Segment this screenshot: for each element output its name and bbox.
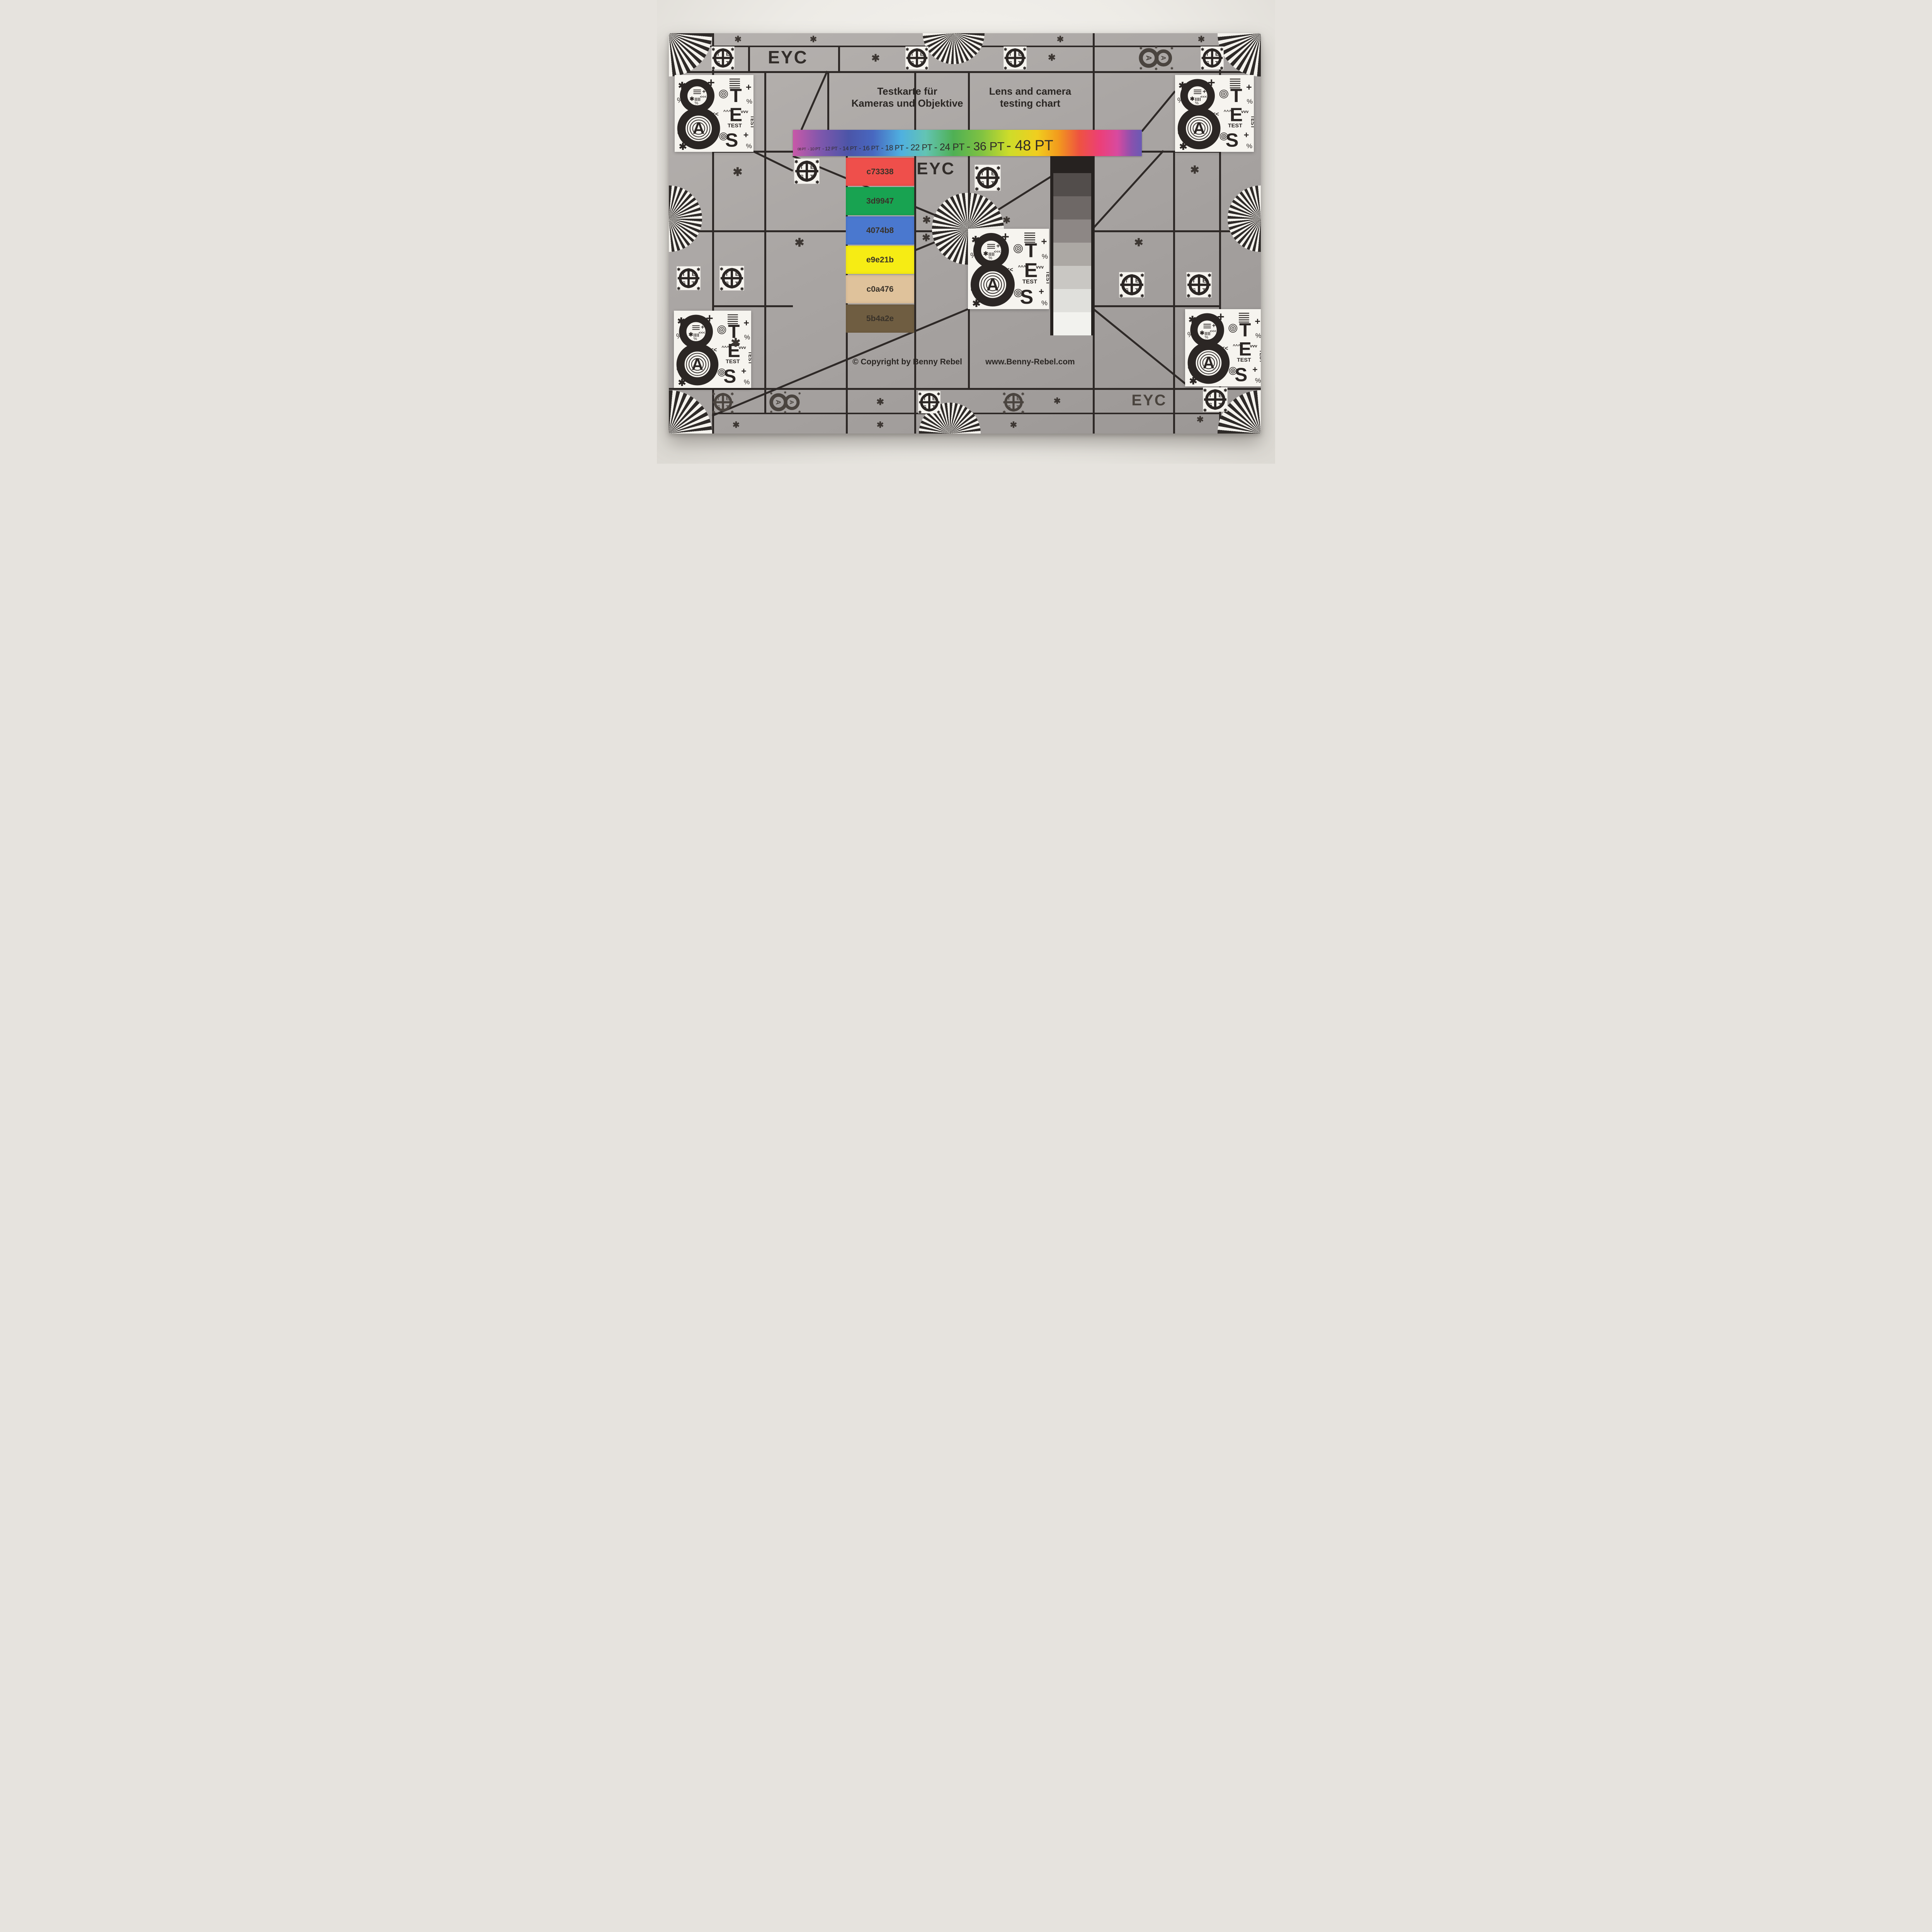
pt-size-label: - 14 PT xyxy=(839,145,857,152)
asterisk-mark: ✱ xyxy=(922,215,931,225)
grayscale-step xyxy=(1053,173,1091,196)
asterisk-mark: ✱ xyxy=(810,35,817,44)
grayscale-step xyxy=(1053,289,1091,312)
grid-line-v xyxy=(764,71,766,413)
test-circle-logo xyxy=(1186,271,1212,299)
grayscale-step xyxy=(1053,266,1091,289)
asterisk-mark: ✱ xyxy=(735,35,742,44)
asterisk-mark: ✱ xyxy=(1048,53,1056,63)
siemens-star-edge-top xyxy=(923,33,985,64)
siemens-star-edge-left xyxy=(669,185,702,252)
eight-test-patch-bottom-left xyxy=(674,311,751,388)
asterisk-mark: ✱ xyxy=(1054,397,1061,405)
eight-test-patch-bottom-right xyxy=(1185,309,1261,386)
siemens-star-edge-right xyxy=(1228,185,1261,252)
siemens-star-corner-bottom-left xyxy=(669,390,712,434)
color-swatch-column: c733383d99474074b8e9e21bc0a4765b4a2e xyxy=(846,158,914,333)
copyright-text: © Copyright by Benny Rebel xyxy=(852,357,962,367)
grayscale-step xyxy=(1053,196,1091,219)
title-german-line1: Testkarte für xyxy=(852,85,963,97)
pt-size-label: - 36 PT xyxy=(966,139,1004,153)
pt-size-label: - 18 PT xyxy=(881,144,904,153)
color-swatch: c0a476 xyxy=(846,275,914,303)
asterisk-mark: ✱ xyxy=(731,337,740,349)
test-circle-logo xyxy=(794,158,820,185)
eight-test-patch-center xyxy=(968,229,1049,309)
asterisk-mark: ✱ xyxy=(1198,35,1205,44)
grid-line-v xyxy=(914,71,916,434)
siemens-star-corner-top-left xyxy=(669,33,712,77)
asterisk-mark: ✱ xyxy=(922,233,930,243)
pt-size-labels: 08 PT- 10 PT- 12 PT- 14 PT- 16 PT- 18 PT… xyxy=(798,138,1053,154)
asterisk-mark: ✱ xyxy=(733,421,740,429)
asterisk-mark: ✱ xyxy=(876,398,884,407)
asterisk-mark: ✱ xyxy=(1010,421,1017,429)
test-circle-logo xyxy=(719,265,745,291)
eight-test-patch-top-right xyxy=(1175,75,1254,152)
test-circle-logo xyxy=(1202,387,1228,412)
test-circle-logo-dark xyxy=(711,391,735,414)
color-swatch: c73338 xyxy=(846,158,914,186)
grid-line-h xyxy=(712,305,793,307)
grid-line-v xyxy=(968,309,970,388)
grid-line-v xyxy=(968,71,970,130)
title-german-line2: Kameras und Objektive xyxy=(852,97,963,109)
asterisk-mark: ✱ xyxy=(1134,237,1143,248)
test-circle-logo xyxy=(1119,271,1145,299)
pt-size-label: - 24 PT xyxy=(934,142,964,153)
grid-line-h xyxy=(669,71,1261,73)
camera-test-chart: 08 PT- 10 PT- 12 PT- 14 PT- 16 PT- 18 PT… xyxy=(669,33,1261,434)
pt-size-label: - 22 PT xyxy=(906,143,932,153)
title-english-line1: Lens and camera xyxy=(989,85,1071,97)
color-swatch: 5b4a2e xyxy=(846,304,914,333)
pt-size-label: - 12 PT xyxy=(822,146,837,151)
sideways-eight-a-icon xyxy=(1138,45,1175,71)
grayscale-step xyxy=(1053,312,1091,335)
pt-size-label: 08 PT xyxy=(798,147,806,151)
test-circle-logo xyxy=(1200,46,1224,70)
rainbow-font-scale-bar: 08 PT- 10 PT- 12 PT- 14 PT- 16 PT- 18 PT… xyxy=(793,130,1142,156)
pt-size-label: - 10 PT xyxy=(808,147,821,151)
asterisk-mark: ✱ xyxy=(1197,415,1204,424)
grid-line-h xyxy=(1093,305,1219,307)
test-circle-logo xyxy=(711,46,735,70)
grayscale-step xyxy=(1053,219,1091,243)
title-german: Testkarte für Kameras und Objektive xyxy=(852,85,963,109)
test-circle-logo xyxy=(918,391,941,414)
website-text: www.Benny-Rebel.com xyxy=(985,357,1075,367)
color-swatch: 3d9947 xyxy=(846,187,914,215)
title-english: Lens and camera testing chart xyxy=(989,85,1071,109)
test-circle-logo xyxy=(974,164,1001,192)
asterisk-mark: ✱ xyxy=(877,421,884,429)
pt-size-label: - 16 PT xyxy=(859,145,879,152)
asterisk-mark: ✱ xyxy=(1057,35,1064,44)
grayscale-step-wedge xyxy=(1050,156,1094,335)
grid-line-v xyxy=(827,71,829,130)
asterisk-mark: ✱ xyxy=(733,167,742,178)
eyc-label-bottom: EYC xyxy=(1131,393,1167,408)
asterisk-mark: ✱ xyxy=(871,53,880,63)
eyc-label-center: EYC xyxy=(917,160,955,177)
color-swatch: 4074b8 xyxy=(846,216,914,245)
grayscale-step xyxy=(1053,243,1091,266)
title-english-line2: testing chart xyxy=(989,97,1071,109)
test-circle-logo xyxy=(1003,46,1027,70)
grid-line-h xyxy=(669,388,1261,390)
asterisk-mark: ✱ xyxy=(1190,165,1199,175)
color-swatch: e9e21b xyxy=(846,246,914,274)
grid-line-v xyxy=(1173,151,1175,434)
sideways-eight-a-icon xyxy=(768,390,802,414)
test-circle-logo xyxy=(905,46,929,70)
grid-line-v xyxy=(968,156,970,193)
asterisk-mark: ✱ xyxy=(794,237,804,249)
asterisk-mark: ✱ xyxy=(1003,216,1010,225)
grid-line-v xyxy=(748,46,750,71)
grid-line-v xyxy=(838,46,840,71)
eight-test-patch-top-left xyxy=(675,75,753,152)
test-circle-logo-dark xyxy=(1002,391,1025,414)
test-circle-logo xyxy=(676,265,701,291)
pt-size-label: - 48 PT xyxy=(1006,138,1053,154)
photo-backdrop: 08 PT- 10 PT- 12 PT- 14 PT- 16 PT- 18 PT… xyxy=(657,0,1275,464)
eyc-label-top: EYC xyxy=(768,48,808,66)
